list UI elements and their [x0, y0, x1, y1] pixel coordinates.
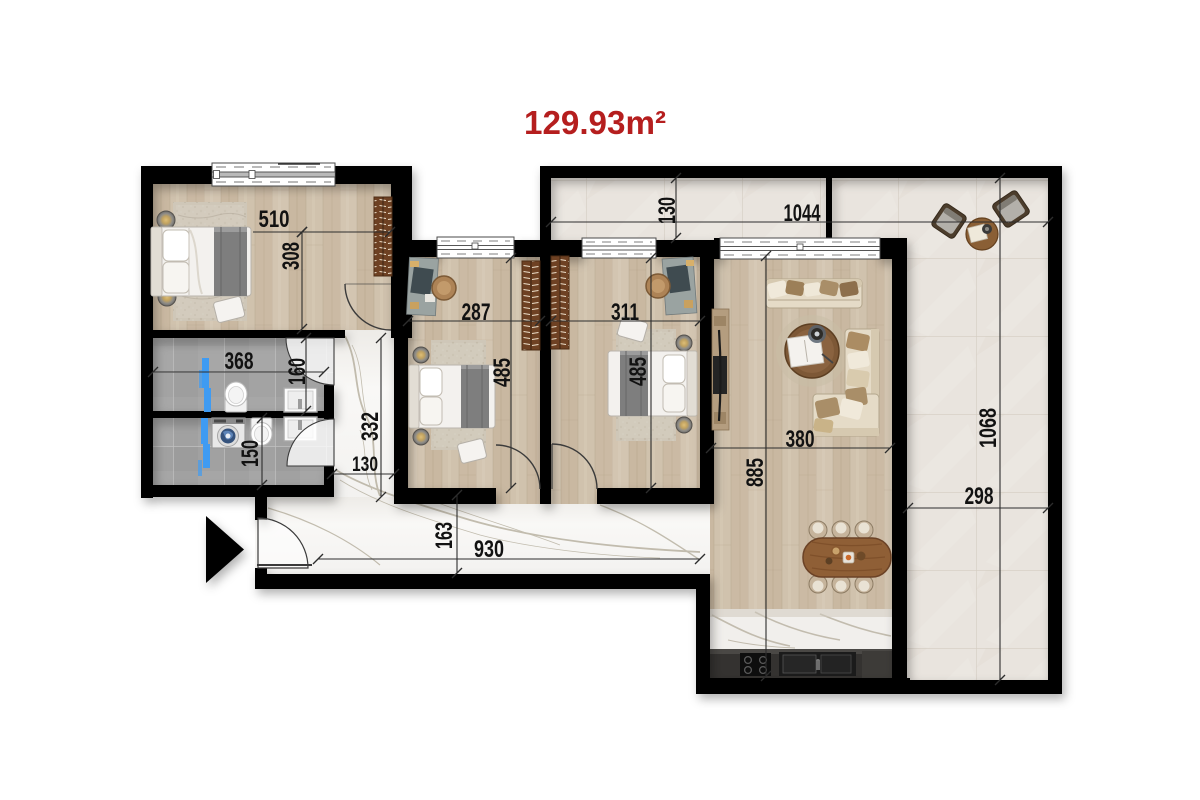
svg-text:485: 485 — [489, 358, 516, 387]
svg-text:930: 930 — [474, 536, 504, 563]
svg-text:287: 287 — [462, 299, 491, 326]
svg-text:368: 368 — [225, 348, 254, 375]
svg-text:1044: 1044 — [784, 200, 821, 227]
svg-text:130: 130 — [654, 197, 681, 224]
svg-text:1068: 1068 — [975, 408, 1002, 448]
svg-text:298: 298 — [965, 483, 994, 510]
svg-text:129.93m²: 129.93m² — [524, 104, 666, 141]
svg-text:380: 380 — [786, 426, 815, 453]
svg-text:885: 885 — [742, 458, 769, 487]
svg-text:332: 332 — [357, 412, 384, 441]
svg-text:150: 150 — [237, 440, 264, 467]
svg-text:510: 510 — [259, 206, 290, 233]
svg-text:308: 308 — [278, 242, 305, 270]
svg-text:311: 311 — [611, 299, 639, 326]
svg-text:160: 160 — [284, 358, 311, 385]
svg-text:163: 163 — [431, 522, 458, 549]
svg-text:130: 130 — [352, 453, 378, 476]
svg-text:485: 485 — [625, 357, 652, 386]
